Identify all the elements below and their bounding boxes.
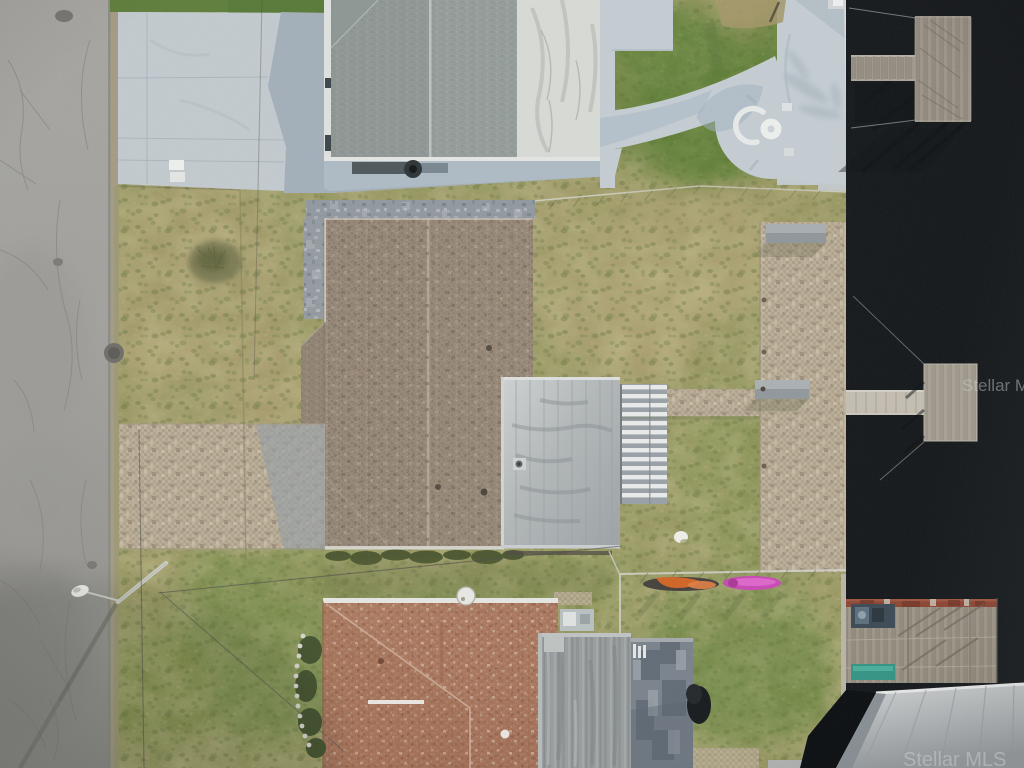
svg-text:Stellar MLS: Stellar MLS [903, 749, 1006, 768]
